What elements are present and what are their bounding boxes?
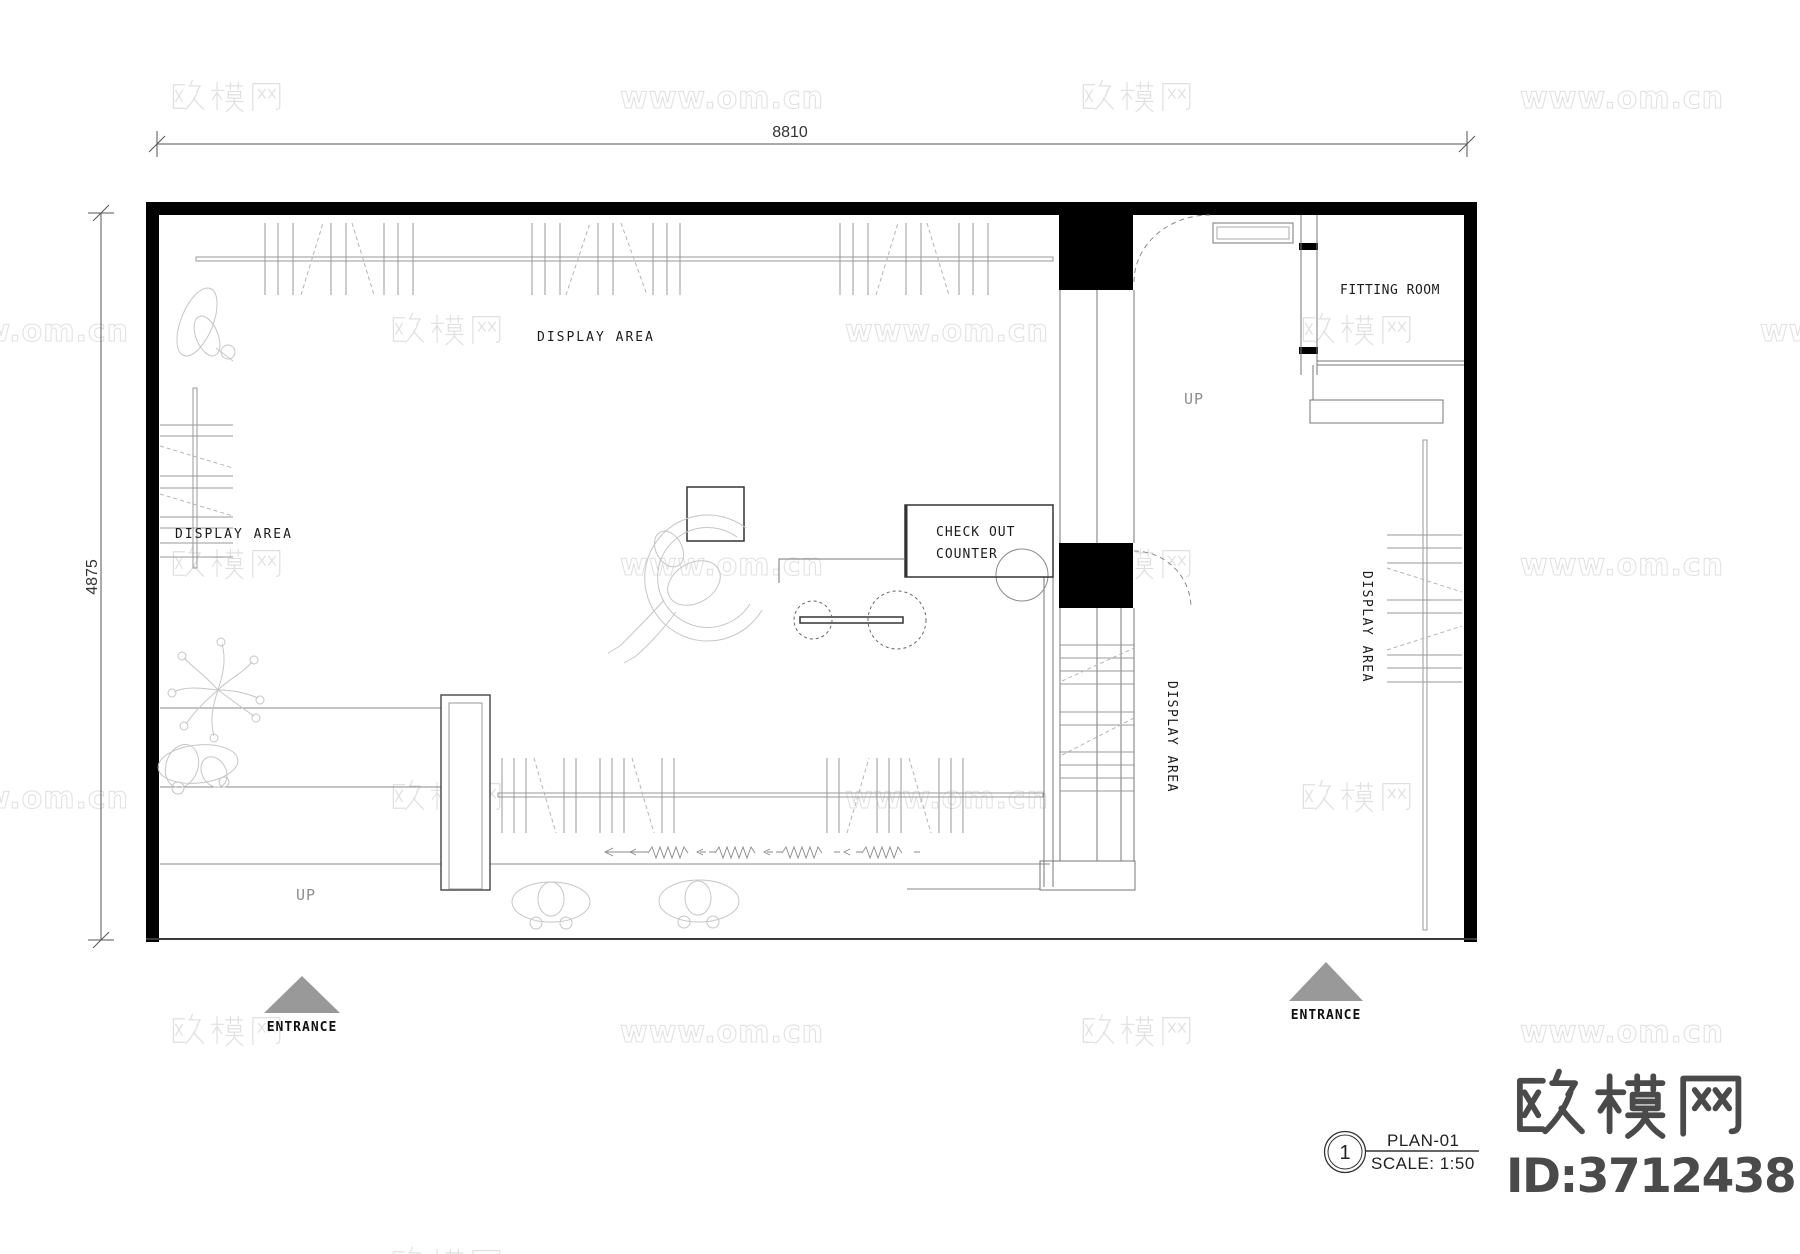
person-sketch	[659, 880, 739, 928]
watermark-brand	[1083, 80, 1189, 111]
rack-annotation-squiggles	[605, 847, 920, 858]
watermark-url: www.om.cn	[1520, 81, 1724, 116]
stool	[868, 591, 926, 649]
watermark-url: www.om.cn	[1760, 314, 1800, 349]
label-fitting-room: FITTING ROOM	[1340, 283, 1440, 298]
column-lower	[1059, 543, 1133, 608]
label-up-lower: UP	[296, 886, 316, 904]
watermark-brand	[173, 80, 279, 111]
drawing-name: PLAN-01	[1387, 1131, 1459, 1150]
column-circle	[996, 549, 1048, 601]
tree-bottom-left	[168, 638, 264, 742]
label-checkout-line2: COUNTER	[936, 547, 998, 562]
title-block: 1 PLAN-01 SCALE: 1:50	[1325, 1131, 1480, 1173]
watermark-brand	[1303, 313, 1409, 344]
drawing-scale: SCALE: 1:50	[1371, 1154, 1475, 1173]
entrance-left-marker	[264, 976, 340, 1013]
watermark-brand	[173, 547, 279, 578]
wall-right	[1464, 202, 1477, 942]
watermark-brand	[393, 1247, 499, 1254]
entrance-right-marker	[1289, 962, 1363, 1001]
display-rack-top	[196, 223, 1053, 295]
label-display-area-right: DISPLAY AREA	[1359, 571, 1374, 683]
watermark-url: www.om.cn	[620, 81, 824, 116]
label-display-area-left: DISPLAY AREA	[175, 527, 293, 542]
detail-number: 1	[1339, 1142, 1350, 1164]
watermark-url: www.om.cn	[0, 781, 129, 816]
display-rack-right	[1387, 440, 1462, 930]
plant-top-left	[169, 283, 235, 362]
watermark-url: www.om.cn	[845, 1248, 1049, 1254]
watermark-brand	[393, 313, 499, 344]
display-partition-wall	[441, 695, 490, 890]
column-upper	[1059, 202, 1133, 290]
display-table	[687, 487, 744, 541]
label-entrance-left: ENTRANCE	[267, 1020, 338, 1035]
dimension-lines	[88, 131, 1475, 948]
counter-table	[800, 617, 903, 623]
dimension-height-label: 4875	[84, 559, 101, 595]
dimension-width-label: 8810	[772, 124, 808, 141]
watermark-url: www.om.cn	[1520, 1015, 1724, 1050]
site-logo-brand-glyphs	[1520, 1072, 1739, 1136]
wall-left	[146, 202, 159, 942]
watermark-url: www.om.cn	[845, 314, 1049, 349]
person-sketch	[512, 882, 590, 929]
entry-shelf	[1213, 223, 1293, 243]
floor-plan-canvas: www.om.cn www.om.cn www.om.cn www.om.cn …	[0, 0, 1800, 1254]
watermark-brand	[173, 1014, 279, 1045]
wall-top	[146, 202, 1477, 215]
watermark-url: www.om.cn	[1520, 548, 1724, 583]
watermark-url: www.om.cn	[0, 314, 129, 349]
stair-landing-bench	[1040, 861, 1135, 890]
watermark-brand	[1303, 780, 1409, 811]
label-display-area-top: DISPLAY AREA	[537, 330, 655, 345]
label-display-area-stair: DISPLAY AREA	[1164, 681, 1179, 793]
watermark-url: www.om.cn	[845, 781, 1049, 816]
watermark-url: www.om.cn	[620, 548, 824, 583]
door-jamb	[1299, 243, 1318, 250]
label-up-upper: UP	[1184, 390, 1204, 408]
label-checkout-line1: CHECK OUT	[936, 525, 1015, 540]
site-logo: 欧模网 ID:3712438	[1506, 1072, 1795, 1204]
plant-bottom-left	[156, 740, 240, 794]
label-entrance-right: ENTRANCE	[1291, 1008, 1362, 1023]
model-id: ID:3712438	[1506, 1149, 1795, 1204]
door-jamb	[1299, 347, 1318, 354]
watermark-url: www.om.cn	[620, 1015, 824, 1050]
entry-shelf-inner	[1217, 227, 1289, 239]
person-on-chair-sketch	[608, 515, 762, 663]
watermark-brand	[1083, 1014, 1189, 1045]
fitting-room-bench	[1310, 400, 1443, 423]
cad-floorplan-page: www.om.cn www.om.cn www.om.cn www.om.cn …	[0, 0, 1800, 1254]
